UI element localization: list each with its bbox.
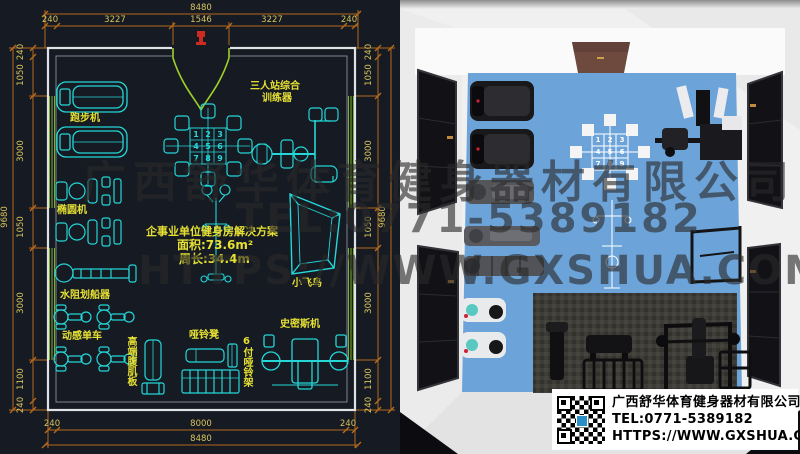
station-number-grid-3d: 1 2 3 4 5 6 7 8 9 [592, 134, 628, 170]
label-dumbbell-rack: 6付哑铃架 [240, 336, 252, 398]
station-number: 6 [616, 146, 628, 158]
station-number: 5 [604, 146, 616, 158]
dim-top-total: 8480 [186, 4, 216, 13]
qr-logo [576, 415, 588, 427]
label-spin-bike: 动感单车 [62, 331, 102, 342]
dumbbell-rack-plan-icon [182, 370, 239, 393]
dim-right: 3000 [365, 283, 375, 323]
station-number: 7 [592, 158, 604, 170]
station-number: 6 [214, 140, 226, 152]
label-smith: 史密斯机 [280, 319, 320, 330]
dumbbell-bench-plan-icon [186, 344, 237, 367]
dim-left: 3000 [17, 283, 27, 323]
company-name: 广西舒华体育健身器材有限公司 [612, 395, 800, 411]
station-number: 1 [190, 128, 202, 140]
dim-top: 1546 [184, 16, 218, 25]
wall-sign [572, 42, 630, 73]
dim-top: 240 [40, 16, 60, 25]
smith-machine-plan-icon [262, 335, 348, 389]
label-elliptical: 椭圆机 [57, 205, 87, 216]
station-number: 9 [214, 152, 226, 164]
station-number: 8 [604, 158, 616, 170]
station-number: 4 [190, 140, 202, 152]
treadmill-plan-icon [57, 127, 127, 157]
qr-code-icon [557, 396, 605, 444]
solution-area: 面积:73.6m² [177, 240, 253, 251]
cable-fly-plan-icon [290, 194, 340, 274]
label-treadmill: 跑步机 [70, 113, 100, 124]
trainer-plan-icon [252, 108, 338, 182]
station-number: 7 [190, 152, 202, 164]
floor-plan-panel: 8480 240 3227 1546 3227 240 240 8000 240… [0, 0, 400, 454]
station-number: 2 [202, 128, 214, 140]
elliptical-plan-icon [56, 177, 121, 205]
dim-left: 240 [17, 385, 27, 425]
treadmill-plan-icon [57, 82, 127, 112]
station-number: 5 [202, 140, 214, 152]
label-fly: 小飞鸟 [292, 278, 322, 289]
label-trainer-1: 三人站综合 [250, 81, 300, 92]
qr-finder [590, 396, 605, 411]
company-tel: TEL:0771-5389182 [612, 411, 800, 428]
dim-right: 3000 [365, 131, 375, 171]
dim-left: 3000 [17, 131, 27, 171]
spin-bike-plan-icon [97, 305, 134, 329]
station-number: 9 [616, 158, 628, 170]
solution-perimeter: 周长:34.4m [179, 254, 250, 265]
dim-left-total: 9680 [1, 197, 11, 237]
label-ab-board: 高端腹肌板 [124, 336, 136, 396]
station-number-grid: 1 2 3 4 5 6 7 8 9 [190, 128, 226, 164]
dim-right: 1050 [365, 207, 375, 247]
dim-right-total: 9680 [379, 197, 389, 237]
spin-bike-plan-icon [54, 305, 91, 329]
dim-top: 3227 [98, 16, 132, 25]
station-number: 3 [616, 134, 628, 146]
render-3d-drawing [400, 0, 800, 454]
render-3d-panel: 1 2 3 4 5 6 7 8 9 [400, 0, 800, 454]
door-marker-icon [196, 31, 206, 45]
dim-right: 240 [365, 385, 375, 425]
station-number: 1 [592, 134, 604, 146]
elliptical-plan-icon [56, 218, 121, 246]
label-dumbbell-bench: 哑铃凳 [189, 330, 219, 341]
solution-title: 企事业单位健身房解决方案 [146, 226, 278, 237]
dim-right: 1050 [365, 55, 375, 95]
station-number: 3 [214, 128, 226, 140]
spin-bike-plan-icon [54, 347, 91, 371]
dim-bottom-total: 8480 [186, 435, 216, 444]
label-trainer-2: 训练器 [262, 93, 292, 104]
company-url: HTTPS://WWW.GXSHUA.COM [612, 428, 800, 445]
station-number: 4 [592, 146, 604, 158]
qr-finder [557, 429, 572, 444]
label-rower: 水阻划船器 [60, 290, 110, 301]
dim-left: 1050 [17, 55, 27, 95]
dim-left: 1050 [17, 207, 27, 247]
gym-design-screenshot: 8480 240 3227 1546 3227 240 240 8000 240… [0, 0, 800, 454]
rower-3d [464, 256, 544, 276]
dim-bottom: 8000 [184, 420, 218, 429]
company-info-text: 广西舒华体育健身器材有限公司 TEL:0771-5389182 HTTPS://… [612, 395, 800, 445]
dim-top: 240 [339, 16, 359, 25]
dim-top: 3227 [255, 16, 289, 25]
station-number: 8 [202, 152, 214, 164]
dim-bottom: 240 [338, 420, 358, 429]
ab-board-plan-icon [142, 340, 164, 394]
rower-plan-icon [55, 264, 136, 282]
qr-finder [557, 396, 572, 411]
station-number: 2 [604, 134, 616, 146]
company-info-box: 广西舒华体育健身器材有限公司 TEL:0771-5389182 HTTPS://… [552, 389, 798, 450]
dim-bottom: 240 [42, 420, 62, 429]
